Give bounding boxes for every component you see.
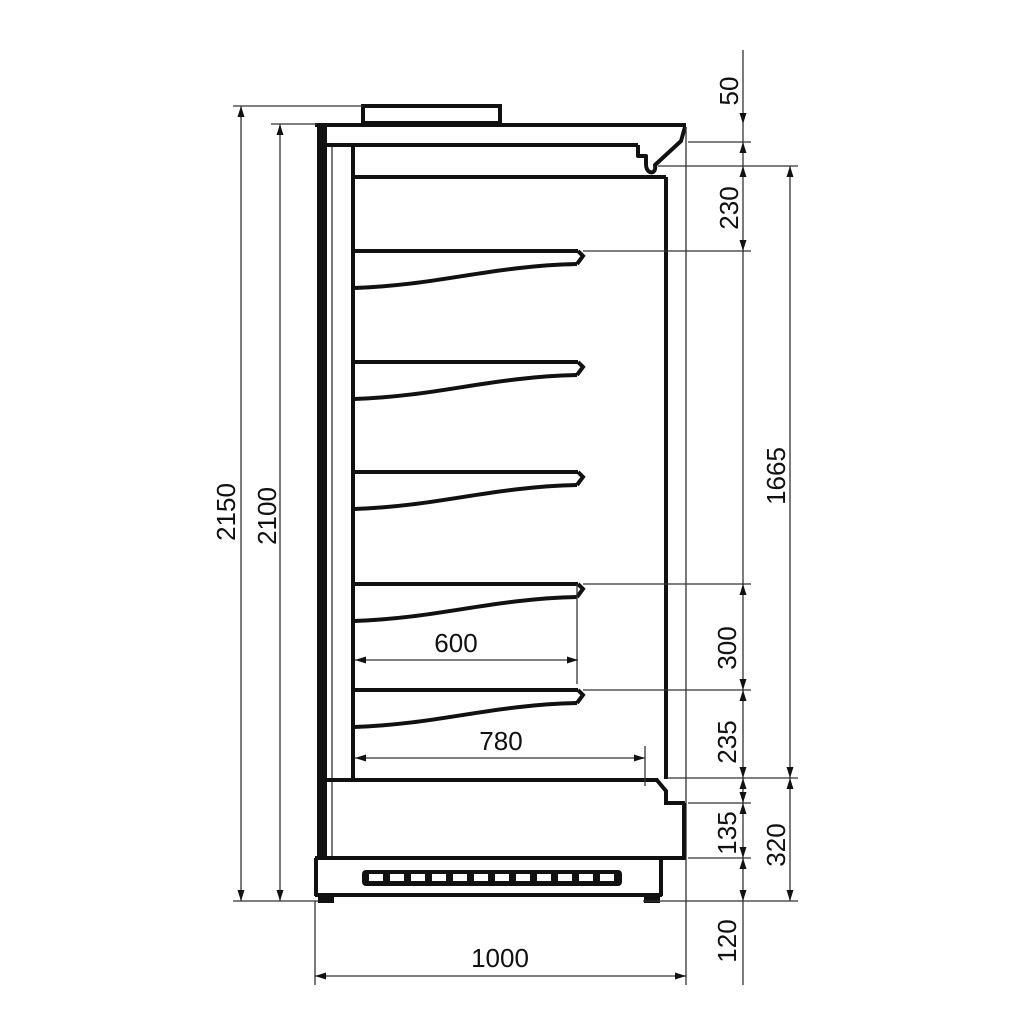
ventilation-grille [362,870,622,886]
shelf-5 [354,690,583,727]
dim-label-120: 120 [712,919,742,962]
dim-label-1000: 1000 [471,943,529,973]
dim-label-135: 135 [712,811,742,854]
dim-label-235: 235 [712,720,742,763]
cabinet-profile [315,106,686,903]
dimension-labels: 2150 2100 50 230 1665 300 235 135 320 12… [211,77,791,973]
shelf-4 [354,584,583,621]
floor-front-step [656,779,685,803]
dim-label-1665: 1665 [761,447,791,505]
dim-label-320: 320 [761,823,791,866]
shelf-2 [354,362,583,399]
dim-label-2150: 2150 [211,483,241,541]
dim-label-2100: 2100 [252,487,282,545]
left-foot [318,895,334,903]
dim-label-600: 600 [434,628,477,658]
shelf-3 [354,472,583,509]
technical-drawing-page: 2150 2100 50 230 1665 300 235 135 320 12… [0,0,1024,1024]
cabinet-section-drawing: 2150 2100 50 230 1665 300 235 135 320 12… [0,0,1024,1024]
dim-label-230: 230 [714,186,744,229]
right-foot [644,895,660,903]
top-cap [363,106,500,123]
shelf-1 [354,251,583,288]
back-wall [317,123,327,857]
dim-label-50: 50 [714,77,744,106]
dim-label-300: 300 [712,626,742,669]
dim-label-780: 780 [479,726,522,756]
